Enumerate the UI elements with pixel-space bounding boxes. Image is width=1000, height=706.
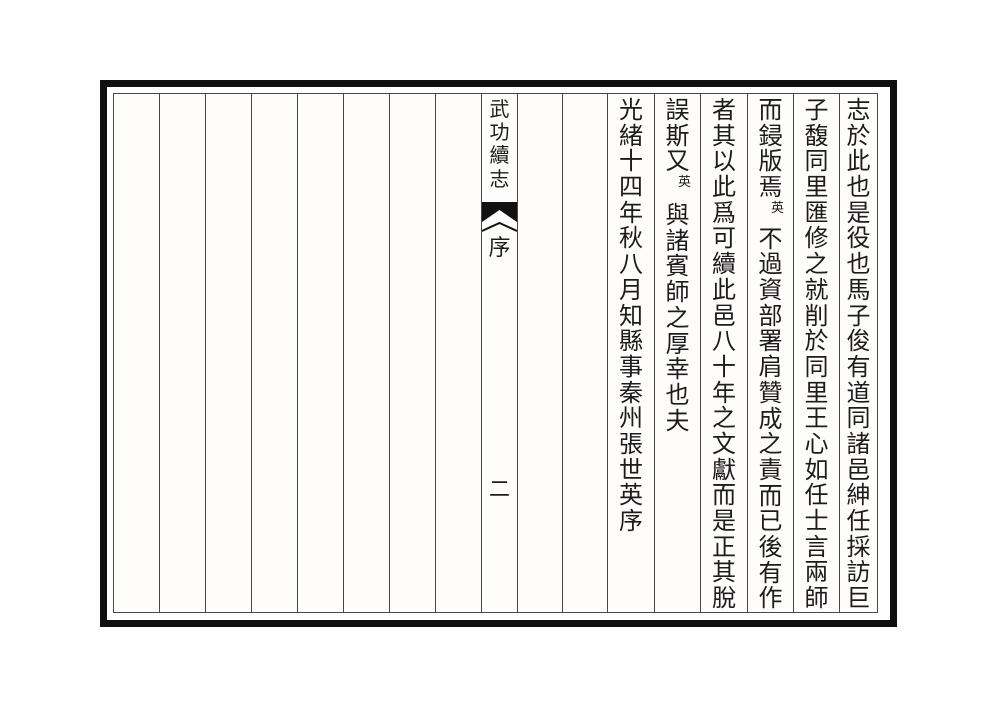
- glyph: 任: [794, 483, 839, 509]
- glyph: 是: [840, 201, 877, 227]
- glyph: 鋟: [748, 124, 793, 150]
- glyph: 邑: [701, 304, 747, 330]
- glyph: 訪: [840, 560, 877, 586]
- glyph: 以: [701, 149, 747, 175]
- glyph: 採: [840, 535, 877, 561]
- glyph: 成: [748, 407, 793, 433]
- glyph: 焉: [748, 175, 793, 201]
- empty-column: [205, 94, 251, 612]
- glyph: 同: [794, 149, 839, 175]
- glyph: 事: [608, 355, 654, 381]
- glyph: 子: [794, 98, 839, 124]
- glyph: 署: [748, 329, 793, 355]
- glyph: 八: [701, 329, 747, 355]
- glyph: 馬: [840, 278, 877, 304]
- banxin-column: 武功續志 序 二: [481, 94, 517, 612]
- glyph: 與: [655, 203, 700, 229]
- glyph: 此: [701, 175, 747, 201]
- glyph: 幸: [655, 357, 700, 383]
- glyph: 續: [701, 252, 747, 278]
- glyph: 斯: [655, 124, 700, 150]
- glyph: 王: [794, 406, 839, 432]
- glyph: 不: [748, 227, 793, 253]
- glyph: 削: [794, 304, 839, 330]
- glyph: 者: [701, 98, 747, 124]
- glyph: 肩: [748, 355, 793, 381]
- glyph: 是: [701, 509, 747, 535]
- glyph: 可: [701, 226, 747, 252]
- glyph: 有: [748, 561, 793, 587]
- empty-column: [114, 94, 159, 612]
- glyph: 版: [748, 149, 793, 175]
- glyph: 厚: [655, 332, 700, 358]
- glyph: 也: [655, 383, 700, 409]
- glyph: 就: [794, 278, 839, 304]
- glyph: 也: [840, 175, 877, 201]
- glyph: 里: [794, 381, 839, 407]
- glyph: 此: [840, 149, 877, 175]
- glyph: 如: [794, 458, 839, 484]
- book-page: 志於此也是役也馬子俊有道同諸邑紳任採訪巨 子馥同里匯修之就削於同里王心如任士言兩…: [0, 0, 1000, 706]
- text-column-2: 子馥同里匯修之就削於同里王心如任士言兩師: [793, 94, 839, 612]
- glyph: 之: [701, 406, 747, 432]
- glyph: 而: [748, 98, 793, 124]
- glyph: 同: [794, 355, 839, 381]
- glyph: 四: [608, 175, 654, 201]
- glyph: 脫: [701, 586, 747, 612]
- glyph: 州: [608, 406, 654, 432]
- glyph: 資: [748, 278, 793, 304]
- glyph: 於: [794, 329, 839, 355]
- glyph: 後: [748, 535, 793, 561]
- glyph: 之: [748, 432, 793, 458]
- empty-column: [251, 94, 297, 612]
- glyph: 十: [608, 149, 654, 175]
- text-column-4: 者其以此爲可續此邑八十年之文獻而是正其脫: [700, 94, 747, 612]
- empty-column: [562, 94, 607, 612]
- text-column-1: 志於此也是役也馬子俊有道同諸邑紳任採訪巨: [839, 94, 877, 612]
- glyph: 責: [748, 458, 793, 484]
- glyph: 而: [701, 483, 747, 509]
- glyph: 作: [748, 586, 793, 612]
- glyph: 里: [794, 175, 839, 201]
- glyph: 兩: [794, 560, 839, 586]
- glyph: 道: [840, 381, 877, 407]
- glyph: 師: [794, 586, 839, 612]
- annotation-char: 英: [755, 201, 800, 216]
- glyph: 於: [840, 124, 877, 150]
- glyph: 英: [608, 483, 654, 509]
- glyph: 而: [748, 484, 793, 510]
- glyph: 年: [608, 201, 654, 227]
- text-column-3: 而鋟版焉英不過資部署肩贊成之責而已後有作: [747, 94, 793, 612]
- glyph: 功: [482, 121, 517, 144]
- glyph: 邑: [840, 458, 877, 484]
- glyph: 獻: [701, 458, 747, 484]
- glyph: 馥: [794, 124, 839, 150]
- glyph: 其: [701, 560, 747, 586]
- section-label: 序: [482, 236, 517, 262]
- glyph: 光: [608, 98, 654, 124]
- empty-column: [343, 94, 389, 612]
- glyph: 心: [794, 432, 839, 458]
- glyph: 修: [794, 226, 839, 252]
- glyph: 十: [701, 355, 747, 381]
- glyph: 此: [701, 278, 747, 304]
- glyph: 言: [794, 535, 839, 561]
- glyph: 巨: [840, 586, 877, 612]
- glyph: 八: [608, 252, 654, 278]
- glyph: 志: [840, 98, 877, 124]
- glyph: 秦: [608, 381, 654, 407]
- glyph: 縣: [608, 329, 654, 355]
- glyph: 序: [608, 509, 654, 535]
- glyph: 年: [701, 381, 747, 407]
- glyph: 賓: [655, 254, 700, 280]
- glyph: 役: [840, 226, 877, 252]
- glyph: 之: [794, 252, 839, 278]
- annotation-char: 英: [662, 175, 707, 190]
- glyph: 知: [608, 304, 654, 330]
- glyph: 世: [608, 458, 654, 484]
- glyph: 武: [482, 98, 517, 121]
- glyph: 諸: [840, 432, 877, 458]
- glyph: 月: [608, 278, 654, 304]
- glyph: 部: [748, 304, 793, 330]
- glyph: 續: [482, 144, 517, 167]
- glyph: 俊: [840, 329, 877, 355]
- empty-column: [435, 94, 481, 612]
- glyph: 子: [840, 304, 877, 330]
- empty-column: [297, 94, 343, 612]
- page-number: 二: [482, 477, 517, 501]
- glyph: 士: [794, 509, 839, 535]
- glyph: 緒: [608, 124, 654, 150]
- glyph: 夫: [655, 409, 700, 435]
- glyph: 同: [840, 406, 877, 432]
- glyph: 已: [748, 509, 793, 535]
- glyph: 諸: [655, 229, 700, 255]
- glyph: 過: [748, 252, 793, 278]
- glyph: 正: [701, 535, 747, 561]
- glyph: 匯: [794, 201, 839, 227]
- glyph: 之: [655, 306, 700, 332]
- glyph: 任: [840, 509, 877, 535]
- glyph: 文: [701, 432, 747, 458]
- glyph: 張: [608, 432, 654, 458]
- text-grid: 志於此也是役也馬子俊有道同諸邑紳任採訪巨 子馥同里匯修之就削於同里王心如任士言兩…: [113, 93, 878, 613]
- empty-column: [389, 94, 435, 612]
- glyph: 誤: [655, 98, 700, 124]
- glyph: 有: [840, 355, 877, 381]
- empty-column: [517, 94, 562, 612]
- glyph: 其: [701, 124, 747, 150]
- text-column-6: 光緒十四年秋八月知縣事秦州張世英序: [607, 94, 654, 612]
- glyph: 秋: [608, 226, 654, 252]
- glyph: 志: [482, 168, 517, 191]
- glyph: 也: [840, 252, 877, 278]
- glyph: 又: [655, 149, 700, 175]
- glyph: 師: [655, 280, 700, 306]
- text-column-5: 誤斯又英與諸賓師之厚幸也夫: [654, 94, 700, 612]
- glyph: 紳: [840, 483, 877, 509]
- fishtail-icon: [482, 202, 517, 234]
- glyph: 贊: [748, 381, 793, 407]
- banxin-title: 武功續志: [482, 94, 517, 191]
- glyph: 爲: [701, 201, 747, 227]
- empty-column: [159, 94, 205, 612]
